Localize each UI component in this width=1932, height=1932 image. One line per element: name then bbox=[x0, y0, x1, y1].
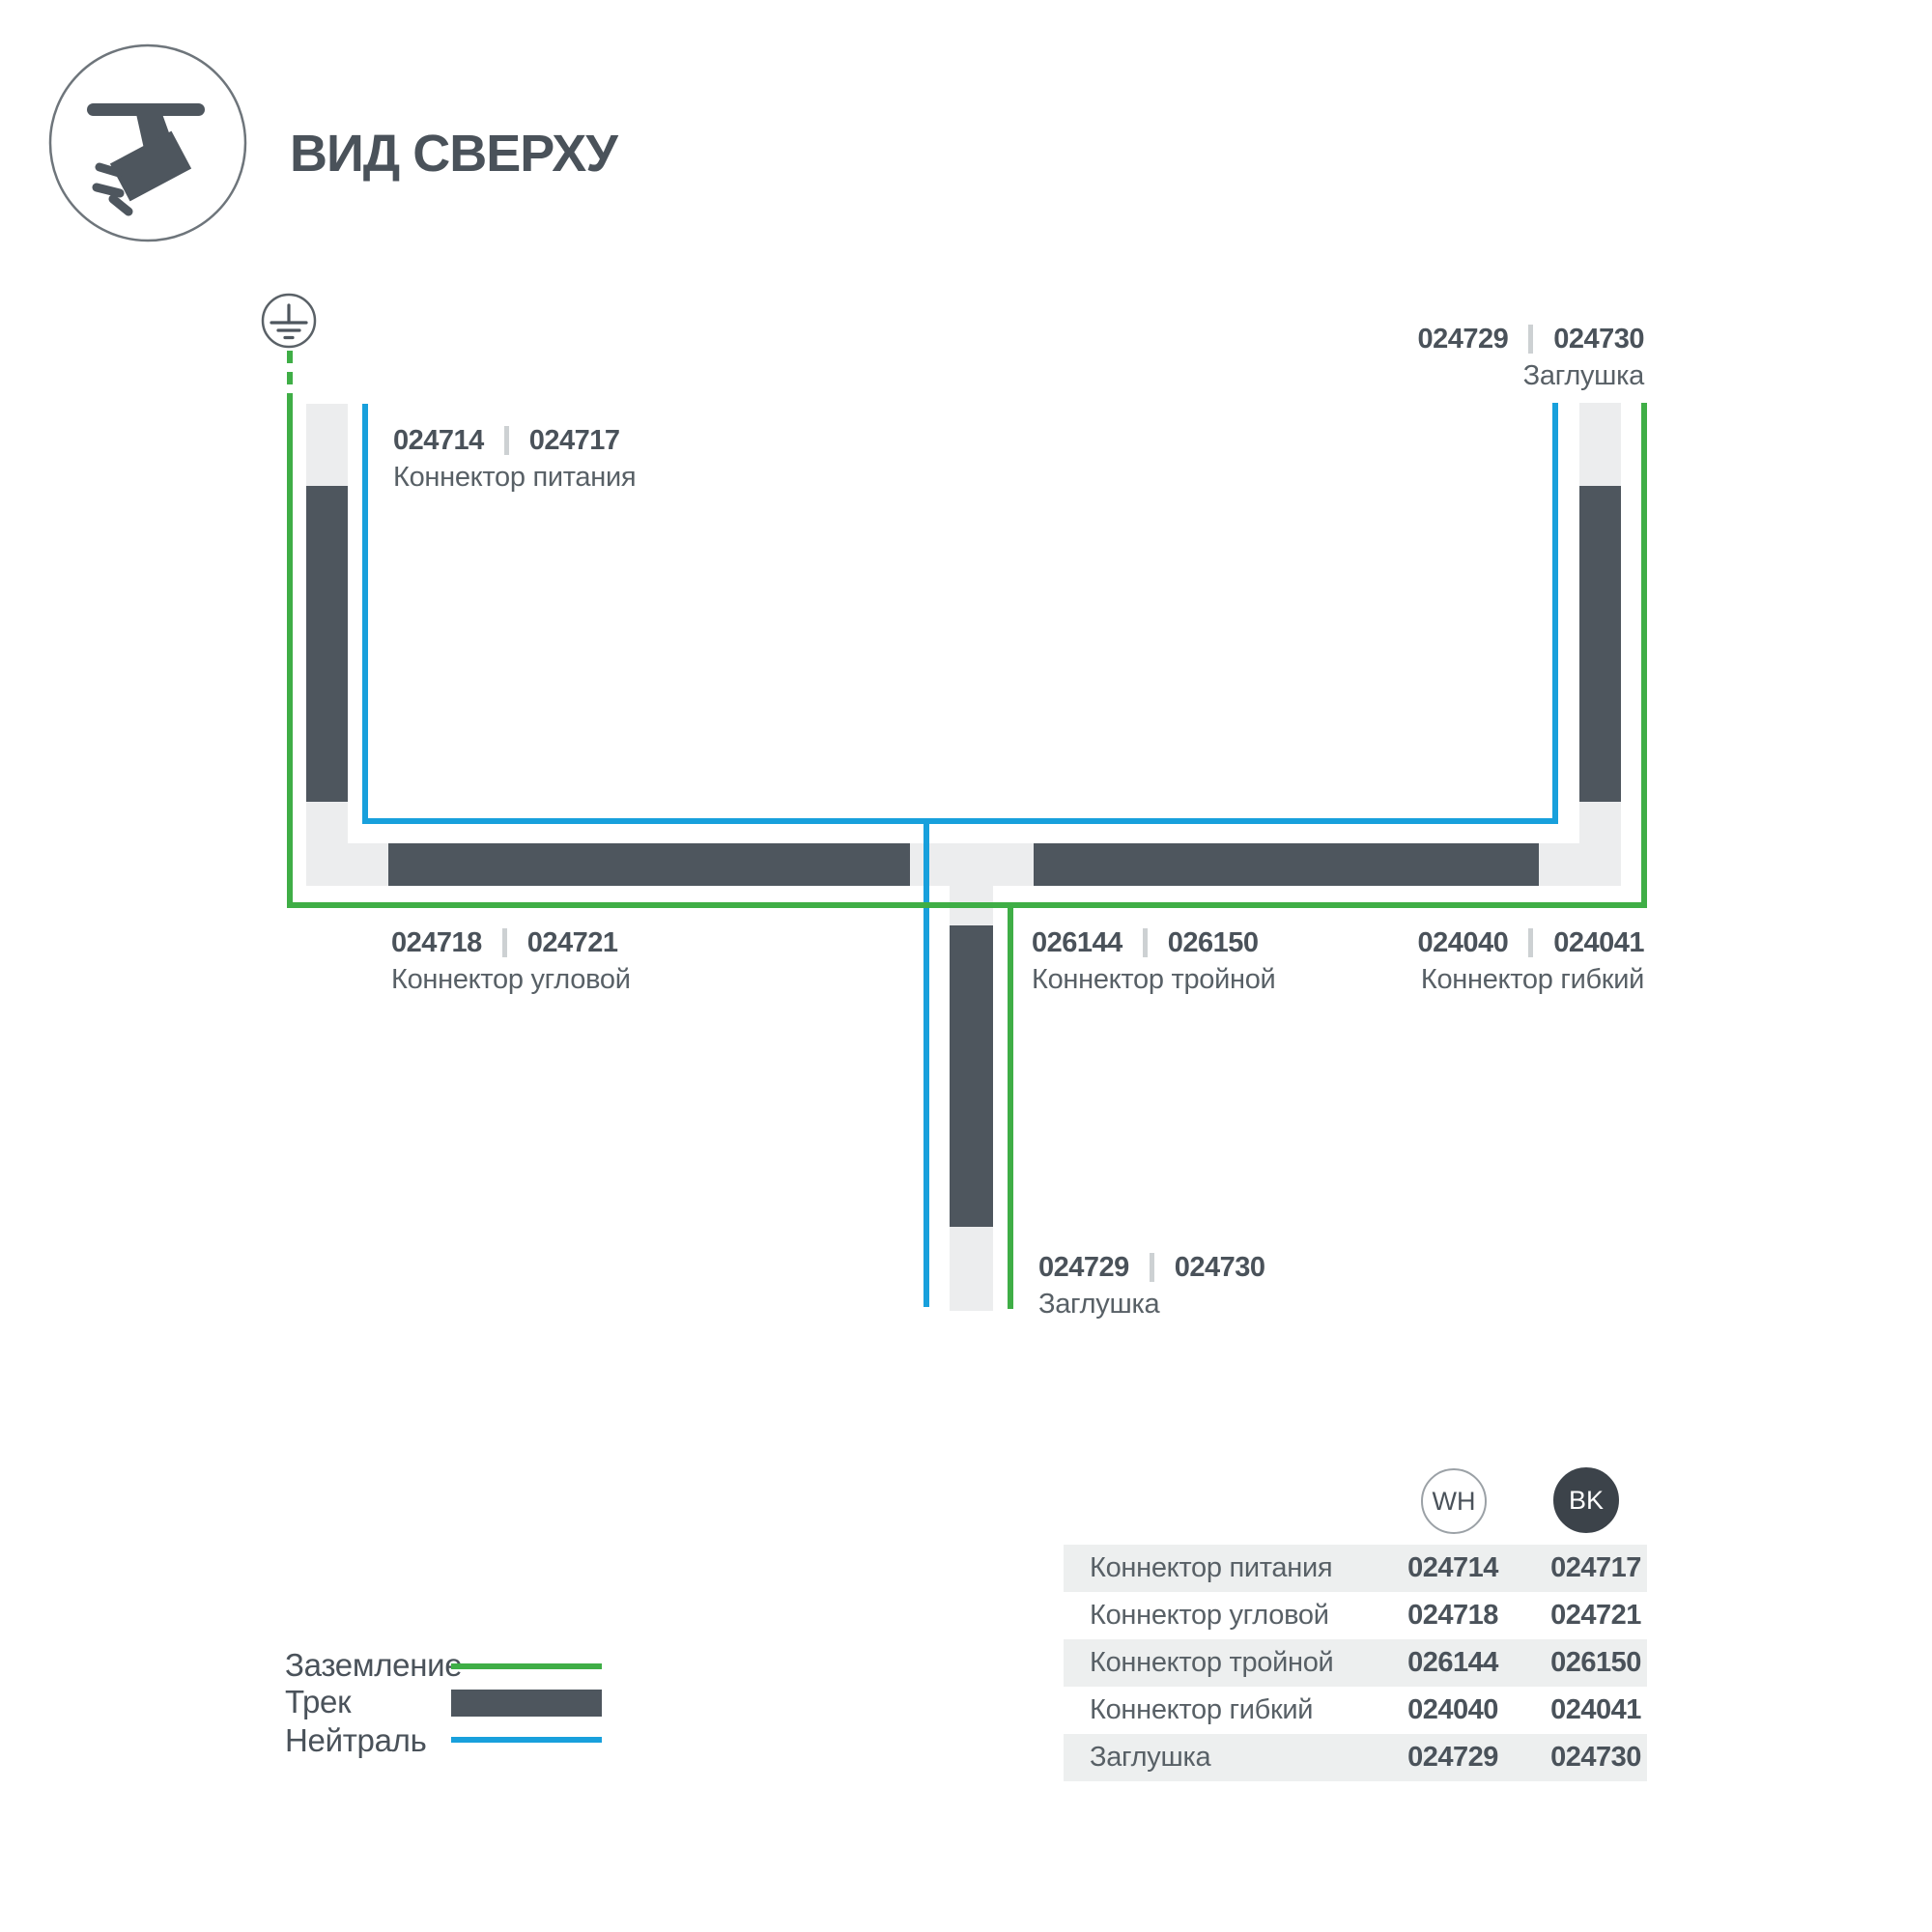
parts-table: Коннектор питания 024714 024717 Коннекто… bbox=[1064, 1545, 1647, 1781]
label-flex-connector: 024040024041 Коннектор гибкий bbox=[1417, 928, 1644, 994]
neutral-line-left bbox=[362, 404, 368, 824]
label-name: Коннектор угловой bbox=[391, 965, 631, 994]
endcap-piece-top-right bbox=[1579, 403, 1621, 486]
code-separator bbox=[1528, 325, 1533, 354]
code-bk: 024730 bbox=[1175, 1252, 1265, 1283]
table-row: Заглушка 024729 024730 bbox=[1064, 1734, 1647, 1781]
column-badge-black: BK bbox=[1553, 1467, 1619, 1533]
part-code-bk: 024717 bbox=[1514, 1545, 1678, 1592]
code-wh: 024040 bbox=[1417, 927, 1508, 958]
label-endcap-bottom: 024729024730 Заглушка bbox=[1038, 1253, 1265, 1319]
part-name: Коннектор тройной bbox=[1090, 1639, 1333, 1687]
part-name: Коннектор угловой bbox=[1090, 1592, 1329, 1639]
flex-connector-horizontal bbox=[1539, 843, 1621, 886]
label-name: Коннектор гибкий bbox=[1417, 965, 1644, 994]
label-name: Заглушка bbox=[1038, 1290, 1265, 1319]
code-wh: 024729 bbox=[1038, 1252, 1129, 1283]
table-row: Коннектор угловой 024718 024721 bbox=[1064, 1592, 1647, 1639]
neutral-line-swatch bbox=[451, 1737, 602, 1743]
code-bk: 026150 bbox=[1168, 927, 1259, 958]
ground-line-left bbox=[287, 403, 293, 908]
label-name: Коннектор питания bbox=[393, 463, 636, 492]
flex-connector-vertical bbox=[1579, 802, 1621, 843]
table-row: Коннектор питания 024714 024717 bbox=[1064, 1545, 1647, 1592]
part-code-bk: 024721 bbox=[1514, 1592, 1678, 1639]
track-segment-right bbox=[1579, 486, 1621, 802]
part-code-wh: 026144 bbox=[1371, 1639, 1535, 1687]
code-wh: 024714 bbox=[393, 425, 484, 456]
code-separator bbox=[502, 928, 507, 957]
earth-ground-icon bbox=[261, 293, 317, 349]
label-name: Заглушка bbox=[1417, 361, 1644, 390]
part-code-wh: 024040 bbox=[1371, 1687, 1535, 1734]
power-connector-piece bbox=[306, 404, 348, 486]
label-corner-connector: 024718024721 Коннектор угловой bbox=[391, 928, 631, 994]
code-bk: 024730 bbox=[1553, 324, 1644, 355]
code-wh: 026144 bbox=[1032, 927, 1122, 958]
ground-line-dashed bbox=[287, 351, 293, 403]
code-separator bbox=[1528, 928, 1533, 957]
code-separator bbox=[504, 426, 509, 455]
part-code-bk: 024730 bbox=[1514, 1734, 1678, 1781]
part-name: Заглушка bbox=[1090, 1734, 1210, 1781]
spec-sheet-page: ВИД СВЕРХУ 024714024717 bbox=[0, 0, 1932, 1932]
ground-line-right bbox=[1641, 403, 1647, 908]
ground-line-swatch bbox=[451, 1663, 602, 1669]
table-row: Коннектор гибкий 024040 024041 bbox=[1064, 1687, 1647, 1734]
page-title: ВИД СВЕРХУ bbox=[290, 124, 617, 184]
ground-line-bottom bbox=[287, 902, 1647, 908]
table-row: Коннектор тройной 026144 026150 bbox=[1064, 1639, 1647, 1687]
part-code-wh: 024714 bbox=[1371, 1545, 1535, 1592]
code-wh: 024729 bbox=[1417, 324, 1508, 355]
track-spotlight-icon bbox=[47, 43, 248, 243]
track-bar-swatch bbox=[451, 1690, 602, 1717]
label-power-connector: 024714024717 Коннектор питания bbox=[393, 426, 636, 492]
corner-connector-horizontal bbox=[348, 843, 388, 886]
part-code-wh: 024718 bbox=[1371, 1592, 1535, 1639]
part-code-bk: 026150 bbox=[1514, 1639, 1678, 1687]
legend-label-neutral: Нейтраль bbox=[285, 1723, 427, 1758]
part-name: Коннектор гибкий bbox=[1090, 1687, 1313, 1734]
part-name: Коннектор питания bbox=[1090, 1545, 1332, 1592]
track-segment-stem bbox=[950, 925, 993, 1227]
label-name: Коннектор тройной bbox=[1032, 965, 1275, 994]
legend-label-ground: Заземление bbox=[285, 1648, 462, 1683]
code-bk: 024041 bbox=[1553, 927, 1644, 958]
code-bk: 024721 bbox=[527, 927, 618, 958]
corner-connector-vertical bbox=[306, 802, 348, 886]
track-segment-bottom-right bbox=[1034, 843, 1539, 886]
part-code-wh: 024729 bbox=[1371, 1734, 1535, 1781]
label-tee-connector: 026144026150 Коннектор тройной bbox=[1032, 928, 1275, 994]
track-segment-left bbox=[306, 486, 348, 802]
legend-label-track: Трек bbox=[285, 1685, 351, 1719]
endcap-piece-bottom bbox=[950, 1227, 993, 1311]
neutral-line-bottom bbox=[362, 818, 1558, 824]
track-segment-bottom-left bbox=[388, 843, 910, 886]
neutral-line-stem bbox=[923, 821, 929, 1307]
ground-line-stem bbox=[1008, 908, 1013, 1309]
code-bk: 024717 bbox=[529, 425, 620, 456]
code-separator bbox=[1143, 928, 1148, 957]
label-endcap-top: 024729024730 Заглушка bbox=[1417, 325, 1644, 390]
column-badge-white: WH bbox=[1421, 1468, 1487, 1534]
code-separator bbox=[1150, 1253, 1154, 1282]
neutral-line-right bbox=[1552, 403, 1558, 824]
part-code-bk: 024041 bbox=[1514, 1687, 1678, 1734]
code-wh: 024718 bbox=[391, 927, 482, 958]
